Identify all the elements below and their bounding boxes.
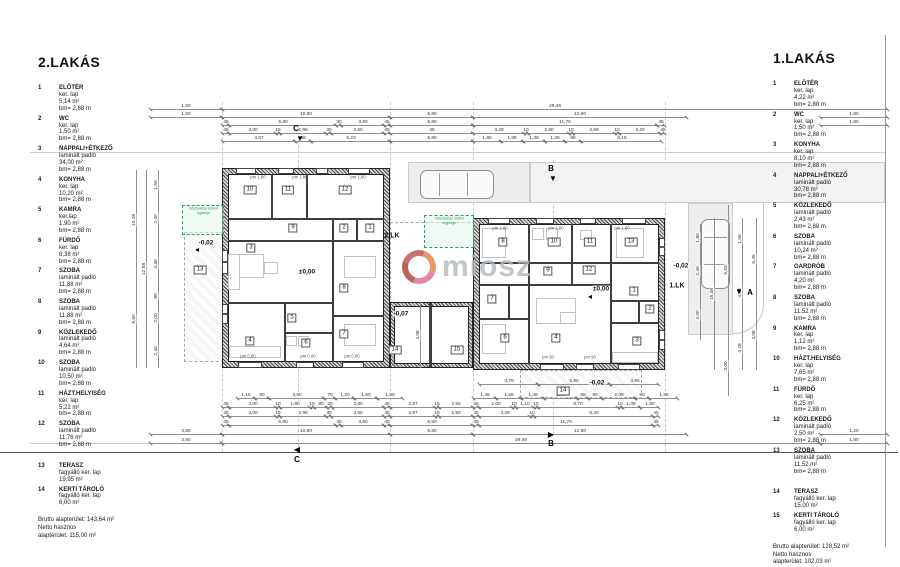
room-schedule-item: 7GARDRÓBlaminált padló4,20 m²bm= 2,88 m <box>773 264 891 292</box>
room-number: 8 <box>38 299 59 327</box>
room-detail-line: 1,12 m² <box>794 339 826 346</box>
room-number: 6 <box>773 234 794 262</box>
room-detail-line: 2,43 m² <box>794 217 832 224</box>
room-number: 1 <box>773 81 794 109</box>
room-detail-line: 10,20 m² <box>59 191 91 198</box>
room-number: 9 <box>38 330 59 358</box>
room-details: TERASZfagyálló ker. lap19,95 m² <box>59 463 101 484</box>
room-schedule-item: 7SZOBAlaminált padló11,88 m²bm= 2,88 m <box>38 268 188 296</box>
section-marker: C <box>294 456 300 464</box>
apartment-entrance-label: 1.LK <box>669 283 684 290</box>
room-name: KERTI TÁROLÓ <box>794 513 839 520</box>
room-detail-line: fagyálló ker. lap <box>794 496 836 503</box>
elevation-label: -0,02 <box>673 263 690 270</box>
room-details: SZOBAlaminált padló10,50 m²bm= 2,88 m <box>59 360 96 388</box>
room-schedule-item: 4KONYHAker. lap10,20 m²bm= 2,88 m <box>38 177 188 205</box>
room-schedule-item: 1ELŐTÉRker. lap4,22 m²bm= 2,88 m <box>773 81 891 109</box>
room-details: KÖZLEKEDŐlaminált padló2,50 m²bm= 2,88 m <box>794 417 832 445</box>
schedule-totals: Brutto alapterület: 143,64 m²Netto haszn… <box>38 517 188 540</box>
parapet-mark: pm 0,00 <box>240 355 255 359</box>
room-schedule-item: 9KÖZLEKEDŐlaminált padló4,64 m²bm= 2,88 … <box>38 330 188 358</box>
room-detail-line: laminált padló <box>59 336 97 343</box>
room-detail-line: laminált padló <box>59 428 96 435</box>
section-marker: B <box>548 440 554 448</box>
room-detail-line: 15,00 m² <box>794 503 836 510</box>
room-detail-line: 11,88 m² <box>59 313 96 320</box>
room-detail-line: bm= 2,88 m <box>794 407 826 414</box>
totals-line: Brutto alapterület: 128,52 m² <box>773 544 891 552</box>
room-number: 11 <box>773 387 794 415</box>
room-detail-line: 30,78 m² <box>794 187 848 194</box>
room-detail-line: 8,10 m² <box>794 156 826 163</box>
room-schedule-item: 5KÖZLEKEDŐlaminált padló2,43 m²bm= 2,88 … <box>773 203 891 231</box>
room-number: 9 <box>773 326 794 354</box>
room-detail-line: 1,50 m² <box>794 125 826 132</box>
room-detail-line: ker. lap <box>794 394 826 401</box>
room-detail-line: 4,20 m² <box>794 278 831 285</box>
schedule-totals: Brutto alapterület: 128,52 m²Netto haszn… <box>773 544 891 567</box>
room-detail-line: bm= 2,88 m <box>59 350 97 357</box>
room-detail-line: bm= 2,88 m <box>59 167 113 174</box>
section-marker: ▼ <box>296 135 304 143</box>
section-marker: ◀ <box>294 446 300 454</box>
room-detail-line: bm= 2,88 m <box>59 136 91 143</box>
room-number: 3 <box>38 146 59 174</box>
room-detail-line: 11,52 m² <box>794 309 831 316</box>
room-number: 12 <box>38 421 59 449</box>
room-name: KAMRA <box>794 326 826 333</box>
room-detail-line: bm= 2,88 m <box>59 320 96 327</box>
room-name: WC <box>794 112 826 119</box>
room-schedule-item: 11HÁZT.HELYISÉGker. lap5,22 m²bm= 2,88 m <box>38 391 188 419</box>
totals-line: alapterület: 102,03 m² <box>773 559 891 567</box>
room-detail-line: ker. lap <box>794 363 841 370</box>
totals-line: alapterület: 115,00 m² <box>38 533 188 541</box>
room-detail-line: 10,24 m² <box>794 248 831 255</box>
room-schedule-item: 10HÁZT.HELYISÉGker. lap7,65 m²bm= 2,88 m <box>773 356 891 384</box>
parapet-mark: pm 90 <box>584 356 596 360</box>
room-detail-line: ker. lap <box>794 88 826 95</box>
room-details: SZOBAlaminált padló11,88 m²bm= 2,88 m <box>59 299 96 327</box>
room-details: FÜRDŐker. lap6,38 m²bm= 2,88 m <box>59 238 91 266</box>
totals-line: Netto hasznos <box>773 552 891 560</box>
room-schedule-item: 13TERASZfagyálló ker. lap19,95 m² <box>38 463 188 484</box>
room-number: 13 <box>773 448 794 476</box>
room-number: 4 <box>38 177 59 205</box>
room-details: HÁZT.HELYISÉGker. lap7,65 m²bm= 2,88 m <box>794 356 841 384</box>
section-marker: C <box>293 125 299 133</box>
room-detail-line: 11,76 m² <box>59 435 96 442</box>
room-detail-line: ker. lap <box>794 119 826 126</box>
room-number: 14 <box>773 489 794 510</box>
room-detail-line: laminált padló <box>794 424 832 431</box>
room-detail-line: ker. lap <box>794 332 826 339</box>
room-detail-line: 5,14 m² <box>59 99 91 106</box>
totals-line: Brutto alapterület: 143,64 m² <box>38 517 188 525</box>
room-detail-line: laminált padló <box>794 302 831 309</box>
room-name: SZOBA <box>794 295 831 302</box>
room-detail-line: 6,00 m² <box>59 500 104 507</box>
room-detail-line: bm= 2,88 m <box>59 411 106 418</box>
room-schedule-2-lakas: 2.LAKÁS 1ELŐTÉRker. lap5,14 m²bm= 2,88 m… <box>38 54 188 541</box>
room-detail-line: 19,95 m² <box>59 477 101 484</box>
room-schedule-item: 6FÜRDŐker. lap6,38 m²bm= 2,88 m <box>38 238 188 266</box>
room-detail-line: bm= 2,88 m <box>794 255 831 262</box>
room-number: 14 <box>38 487 59 508</box>
room-detail-line: bm= 2,88 m <box>59 381 96 388</box>
room-name: FÜRDŐ <box>59 238 91 245</box>
room-detail-line: laminált padló <box>794 180 848 187</box>
schedule-title-2-lakas: 2.LAKÁS <box>38 54 188 70</box>
room-name: SZOBA <box>59 268 96 275</box>
room-detail-line: bm= 2,88 m <box>794 102 826 109</box>
elevation-label: -0,02 <box>198 240 215 247</box>
room-number: 5 <box>38 207 59 235</box>
room-detail-line: bm= 2,88 m <box>59 197 91 204</box>
room-details: WCker. lap1,50 m²bm= 2,88 m <box>59 116 91 144</box>
room-detail-line: 34,00 m² <box>59 160 113 167</box>
room-detail-line: 4,22 m² <box>794 95 826 102</box>
room-details: FÜRDŐker. lap6,25 m²bm= 2,88 m <box>794 387 826 415</box>
room-detail-line: bm= 2,88 m <box>794 438 832 445</box>
room-detail-line: 5,22 m² <box>59 405 106 412</box>
parapet-mark: pm 1,80 <box>250 176 265 180</box>
room-detail-line: laminált padló <box>794 271 831 278</box>
room-detail-line: bm= 2,88 m <box>59 442 96 449</box>
room-schedule-item: 9KAMRAker. lap1,12 m²bm= 2,88 m <box>773 326 891 354</box>
room-detail-line: 6,38 m² <box>59 252 91 259</box>
room-detail-line: 10,50 m² <box>59 374 96 381</box>
apartment-entrance-label: 2.LK <box>384 233 399 240</box>
room-schedule-item: 3NAPPALI+ÉTKEZŐlaminált padló34,00 m²bm=… <box>38 146 188 174</box>
room-name: FÜRDŐ <box>794 387 826 394</box>
room-details: SZOBAlaminált padló11,52 m²bm= 2,88 m <box>794 448 831 476</box>
room-detail-line: ker. lap <box>59 123 91 130</box>
elevation-label: ±0,00 <box>298 269 316 276</box>
room-detail-line: 1,50 m² <box>59 129 91 136</box>
room-detail-line: bm= 2,88 m <box>794 132 826 139</box>
room-name: KÖZLEKEDŐ <box>59 330 97 337</box>
room-number: 8 <box>773 295 794 323</box>
totals-line: Netto hasznos <box>38 525 188 533</box>
room-details: KÖZLEKEDŐlaminált padló4,64 m²bm= 2,88 m <box>59 330 97 358</box>
room-detail-line: bm= 2,88 m <box>794 285 831 292</box>
room-detail-line: 6,00 m² <box>794 527 839 534</box>
room-details: KAMRAker.lap1,90 m²bm= 2,88 m <box>59 207 91 235</box>
elevation-label: -0,07 <box>393 311 410 318</box>
room-detail-line: laminált padló <box>794 455 831 462</box>
room-details: KONYHAker. lap10,20 m²bm= 2,88 m <box>59 177 91 205</box>
room-name: KONYHA <box>59 177 91 184</box>
room-name: SZOBA <box>59 299 96 306</box>
room-name: NAPPALI+ÉTKEZŐ <box>59 146 113 153</box>
room-details: SZOBAlaminált padló11,52 m²bm= 2,88 m <box>794 295 831 323</box>
section-marker: ▶ <box>548 431 554 439</box>
room-name: KONYHA <box>794 142 826 149</box>
room-number: 2 <box>38 116 59 144</box>
room-detail-line: 2,50 m² <box>794 431 832 438</box>
room-details: NAPPALI+ÉTKEZŐlaminált padló34,00 m²bm= … <box>59 146 113 174</box>
room-details: TERASZfagyálló ker. lap15,00 m² <box>794 489 836 510</box>
room-name: SZOBA <box>59 360 96 367</box>
room-number: 12 <box>773 417 794 445</box>
room-schedule-item: 11FÜRDŐker. lap6,25 m²bm= 2,88 m <box>773 387 891 415</box>
room-detail-line: laminált padló <box>59 275 96 282</box>
section-marker: ◂ <box>195 246 199 254</box>
room-detail-line: bm= 2,88 m <box>794 193 848 200</box>
room-detail-line: laminált padló <box>59 153 113 160</box>
room-detail-line: bm= 2,88 m <box>59 106 91 113</box>
room-number: 6 <box>38 238 59 266</box>
room-detail-line: bm= 2,88 m <box>794 163 826 170</box>
room-detail-line: ker. lap <box>59 92 91 99</box>
room-detail-line: bm= 2,88 m <box>794 469 831 476</box>
room-schedule-item: 2WCker. lap1,50 m²bm= 2,88 m <box>38 116 188 144</box>
parapet-mark: pm 1,80 <box>292 176 307 180</box>
room-detail-line: fagyálló ker. lap <box>794 520 839 527</box>
schedule-items: 1ELŐTÉRker. lap4,22 m²bm= 2,88 m2WCker. … <box>773 81 891 534</box>
room-name: KÖZLEKEDŐ <box>794 203 832 210</box>
room-detail-line: ker. lap <box>59 245 91 252</box>
room-schedule-item: 10SZOBAlaminált padló10,50 m²bm= 2,88 m <box>38 360 188 388</box>
room-number: 15 <box>773 513 794 534</box>
room-schedule-item: 8SZOBAlaminált padló11,52 m²bm= 2,88 m <box>773 295 891 323</box>
room-detail-line: laminált padló <box>59 367 96 374</box>
room-number: 1 <box>38 85 59 113</box>
section-marker: ▼ <box>549 175 557 183</box>
room-details: ELŐTÉRker. lap5,14 m²bm= 2,88 m <box>59 85 91 113</box>
room-schedule-1-lakas: 1.LAKÁS 1ELŐTÉRker. lap4,22 m²bm= 2,88 m… <box>773 50 891 567</box>
room-detail-line: ker.lap <box>59 214 91 221</box>
room-schedule-item: 13SZOBAlaminált padló11,52 m²bm= 2,88 m <box>773 448 891 476</box>
room-details: KÖZLEKEDŐlaminált padló2,43 m²bm= 2,88 m <box>794 203 832 231</box>
room-number: 13 <box>38 463 59 484</box>
room-schedule-item: 15KERTI TÁROLÓfagyálló ker. lap6,00 m² <box>773 513 891 534</box>
schedule-title-1-lakas: 1.LAKÁS <box>773 50 891 66</box>
room-details: KERTI TÁROLÓfagyálló ker. lap6,00 m² <box>794 513 839 534</box>
room-detail-line: ker. lap <box>794 149 826 156</box>
room-details: SZOBAlaminált padló10,24 m²bm= 2,88 m <box>794 234 831 262</box>
room-name: WC <box>59 116 91 123</box>
parapet-mark: pm 0,00 <box>344 355 359 359</box>
room-number: 7 <box>773 264 794 292</box>
room-name: KÖZLEKEDŐ <box>794 417 832 424</box>
section-marker: B <box>548 165 554 173</box>
room-detail-line: ker. lap <box>59 184 91 191</box>
room-name: HÁZT.HELYISÉG <box>794 356 841 363</box>
room-name: ELŐTÉR <box>794 81 826 88</box>
room-name: KAMRA <box>59 207 91 214</box>
room-details: KONYHAker. lap8,10 m²bm= 2,88 m <box>794 142 826 170</box>
room-detail-line: bm= 2,88 m <box>59 228 91 235</box>
room-detail-line: 6,25 m² <box>794 401 826 408</box>
section-marker: A <box>747 289 753 297</box>
room-name: TERASZ <box>59 463 101 470</box>
room-detail-line: bm= 2,88 m <box>794 346 826 353</box>
room-name: KERTI TÁROLÓ <box>59 487 104 494</box>
room-number: 3 <box>773 142 794 170</box>
room-schedule-item: 4NAPPALI+ÉTKEZŐlaminált padló30,78 m²bm=… <box>773 173 891 201</box>
room-name: TERASZ <box>794 489 836 496</box>
room-detail-line: 1,90 m² <box>59 221 91 228</box>
room-detail-line: laminált padló <box>794 241 831 248</box>
room-details: HÁZT.HELYISÉGker. lap5,22 m²bm= 2,88 m <box>59 391 106 419</box>
room-name: SZOBA <box>794 234 831 241</box>
room-number: 10 <box>38 360 59 388</box>
room-name: HÁZT.HELYISÉG <box>59 391 106 398</box>
room-details: SZOBAlaminált padló11,88 m²bm= 2,88 m <box>59 268 96 296</box>
room-number: 7 <box>38 268 59 296</box>
room-schedule-item: 5KAMRAker.lap1,90 m²bm= 2,88 m <box>38 207 188 235</box>
schedule-items: 1ELŐTÉRker. lap5,14 m²bm= 2,88 m2WCker. … <box>38 85 188 507</box>
room-number: 4 <box>773 173 794 201</box>
room-schedule-item: 14KERTI TÁROLÓfagyálló ker. lap6,00 m² <box>38 487 188 508</box>
room-name: SZOBA <box>59 421 96 428</box>
parapet-mark: pm 1,80 <box>350 176 365 180</box>
parapet-mark: pm 1,80 <box>492 227 507 231</box>
room-number: 5 <box>773 203 794 231</box>
room-detail-line: fagyálló ker. lap <box>59 470 101 477</box>
room-schedule-item: 3KONYHAker. lap8,10 m²bm= 2,88 m <box>773 142 891 170</box>
room-schedule-item: 6SZOBAlaminált padló10,24 m²bm= 2,88 m <box>773 234 891 262</box>
room-details: SZOBAlaminált padló11,76 m²bm= 2,88 m <box>59 421 96 449</box>
room-detail-line: 11,88 m² <box>59 282 96 289</box>
section-marker: ◂ <box>588 293 592 301</box>
room-detail-line: 7,65 m² <box>794 370 841 377</box>
room-detail-line: fagyálló ker. lap <box>59 493 104 500</box>
room-number: 2 <box>773 112 794 140</box>
room-detail-line: 11,52 m² <box>794 462 831 469</box>
room-schedule-item: 14TERASZfagyálló ker. lap15,00 m² <box>773 489 891 510</box>
room-schedule-item: 12KÖZLEKEDŐlaminált padló2,50 m²bm= 2,88… <box>773 417 891 445</box>
room-name: GARDRÓB <box>794 264 831 271</box>
room-detail-line: ker. lap <box>59 398 106 405</box>
room-schedule-item: 1ELŐTÉRker. lap5,14 m²bm= 2,88 m <box>38 85 188 113</box>
parapet-mark: pm 90 <box>542 356 554 360</box>
room-schedule-item: 2WCker. lap1,50 m²bm= 2,88 m <box>773 112 891 140</box>
room-details: KERTI TÁROLÓfagyálló ker. lap6,00 m² <box>59 487 104 508</box>
room-number: 11 <box>38 391 59 419</box>
room-detail-line: 4,64 m² <box>59 343 97 350</box>
room-details: GARDRÓBlaminált padló4,20 m²bm= 2,88 m <box>794 264 831 292</box>
room-detail-line: laminált padló <box>59 306 96 313</box>
room-detail-line: bm= 2,88 m <box>59 289 96 296</box>
room-name: NAPPALI+ÉTKEZŐ <box>794 173 848 180</box>
room-schedule-item: 8SZOBAlaminált padló11,88 m²bm= 2,88 m <box>38 299 188 327</box>
room-detail-line: laminált padló <box>794 210 832 217</box>
room-schedule-item: 12SZOBAlaminált padló11,76 m²bm= 2,88 m <box>38 421 188 449</box>
parapet-mark: pm 1,80 <box>548 227 563 231</box>
room-detail-line: bm= 2,88 m <box>794 224 832 231</box>
elevation-label: ±0,00 <box>592 286 610 293</box>
room-details: ELŐTÉRker. lap4,22 m²bm= 2,88 m <box>794 81 826 109</box>
room-detail-line: bm= 2,88 m <box>794 316 831 323</box>
room-name: SZOBA <box>794 448 831 455</box>
room-number: 10 <box>773 356 794 384</box>
parapet-mark: pm 0,00 <box>300 355 315 359</box>
room-name: ELŐTÉR <box>59 85 91 92</box>
room-detail-line: bm= 2,88 m <box>59 259 91 266</box>
section-marker: ▼ <box>735 288 743 296</box>
elevation-label: -0,02 <box>589 380 606 387</box>
parapet-mark: pm 1,80 <box>614 227 629 231</box>
room-details: WCker. lap1,50 m²bm= 2,88 m <box>794 112 826 140</box>
room-details: KAMRAker. lap1,12 m²bm= 2,88 m <box>794 326 826 354</box>
room-details: NAPPALI+ÉTKEZŐlaminált padló30,78 m²bm= … <box>794 173 848 201</box>
room-detail-line: bm= 2,88 m <box>794 377 841 384</box>
